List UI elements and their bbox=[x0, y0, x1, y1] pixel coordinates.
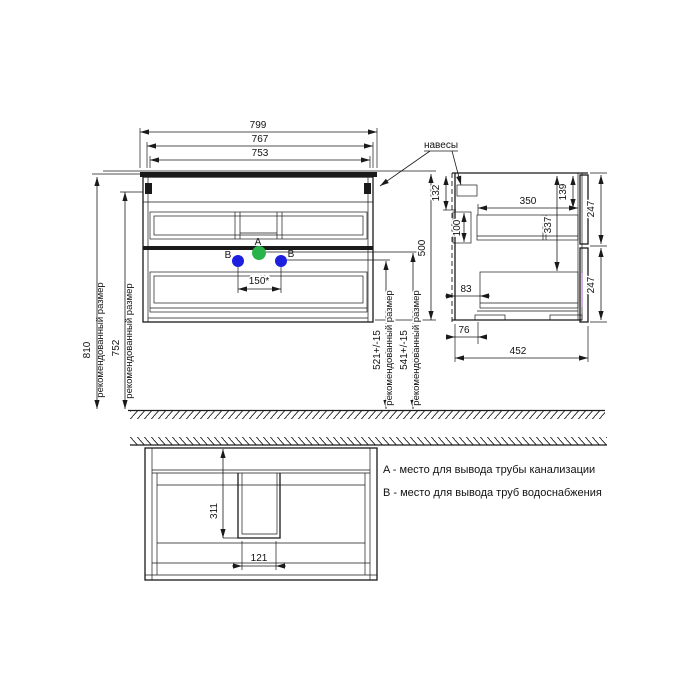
right-dimensions: 521+/-15 рекомендованный размер 541+/-15… bbox=[372, 174, 436, 409]
label-b-left: B bbox=[225, 250, 232, 261]
left-dimensions: 810 рекомендованный размер 752 рекомендо… bbox=[82, 174, 143, 409]
svg-text:810: 810 bbox=[82, 341, 93, 358]
dim-121: 121 bbox=[232, 541, 286, 570]
dim-247-upper: 247 bbox=[586, 173, 607, 246]
svg-text:799: 799 bbox=[250, 120, 267, 131]
svg-text:150*: 150* bbox=[249, 276, 270, 287]
countertop bbox=[140, 172, 377, 177]
dim-799: 799 bbox=[140, 120, 377, 132]
hangers-label: навесы bbox=[424, 140, 458, 151]
svg-text:752: 752 bbox=[111, 339, 122, 356]
side-lower-drawer bbox=[477, 272, 578, 311]
dim-810: 810 рекомендованный размер bbox=[82, 177, 106, 409]
svg-text:139: 139 bbox=[558, 183, 569, 200]
svg-text:рекомендованный размер: рекомендованный размер bbox=[95, 282, 106, 397]
dim-139: 139 bbox=[558, 176, 573, 208]
foot-right bbox=[550, 315, 582, 320]
svg-text:452: 452 bbox=[510, 346, 527, 357]
svg-text:76: 76 bbox=[458, 325, 470, 336]
svg-text:311: 311 bbox=[209, 503, 220, 519]
legend-line-b: B - место для вывода труб водоснабжения bbox=[383, 487, 602, 499]
technical-drawing: A B B 150* 799 767 753 навесы bbox=[0, 0, 700, 700]
svg-text:рекомендованный размер: рекомендованный размер bbox=[384, 290, 395, 405]
svg-text:247: 247 bbox=[586, 276, 597, 293]
label-a: A bbox=[255, 237, 262, 248]
legend: A - место для вывода трубы канализации B… bbox=[383, 464, 602, 499]
label-b-right: B bbox=[288, 249, 295, 260]
drain-outlet-marker bbox=[252, 246, 266, 260]
svg-text:521+/-15: 521+/-15 bbox=[372, 330, 383, 370]
svg-text:247: 247 bbox=[586, 200, 597, 217]
top-dimensions: 799 767 753 bbox=[140, 120, 377, 168]
dim-247-lower: 247 bbox=[586, 248, 607, 322]
svg-text:337: 337 bbox=[543, 216, 554, 233]
svg-text:350: 350 bbox=[520, 196, 537, 207]
svg-text:100: 100 bbox=[452, 219, 463, 236]
svg-text:753: 753 bbox=[252, 148, 269, 159]
legend-line-a: A - место для вывода трубы канализации bbox=[383, 464, 595, 476]
hangers-callout: навесы bbox=[380, 140, 461, 186]
bottom-view: 311 121 bbox=[130, 437, 607, 580]
svg-text:121: 121 bbox=[251, 553, 268, 564]
dim-337: 337 bbox=[543, 176, 557, 271]
upper-drawer bbox=[150, 212, 367, 239]
side-upper-drawer bbox=[477, 215, 578, 240]
svg-text:500: 500 bbox=[417, 239, 428, 256]
dim-452: 452 bbox=[455, 324, 588, 362]
siphon-cutout bbox=[238, 473, 280, 538]
dim-76: 76 bbox=[446, 322, 487, 344]
svg-text:132: 132 bbox=[431, 184, 442, 201]
dim-752: 752 рекомендованный размер bbox=[111, 192, 135, 409]
svg-text:рекомендованный размер: рекомендованный размер bbox=[411, 290, 422, 405]
svg-text:рекомендованный размер: рекомендованный размер bbox=[124, 283, 135, 398]
floor-hatch bbox=[130, 411, 605, 419]
dim-541: 541+/-15 рекомендованный размер bbox=[399, 253, 422, 409]
side-view: 132 100 350 139 337 247 247 bbox=[431, 173, 607, 362]
dim-521: 521+/-15 рекомендованный размер bbox=[372, 261, 395, 409]
wall-hatch bbox=[130, 437, 607, 445]
water-outlet-left-marker bbox=[232, 255, 244, 267]
dim-753: 753 bbox=[150, 148, 370, 160]
floor-line bbox=[128, 411, 605, 420]
dim-150: 150* bbox=[238, 267, 281, 293]
foot-left bbox=[475, 315, 505, 320]
dim-100: 100 bbox=[452, 213, 464, 242]
svg-text:767: 767 bbox=[252, 134, 269, 145]
hanger-right-icon bbox=[364, 183, 371, 194]
dim-767: 767 bbox=[147, 134, 373, 146]
water-outlet-right-marker bbox=[275, 255, 287, 267]
hanger-side-icon bbox=[457, 185, 477, 196]
svg-text:541+/-15: 541+/-15 bbox=[399, 330, 410, 370]
dim-311: 311 bbox=[209, 449, 240, 538]
svg-text:83: 83 bbox=[460, 284, 472, 295]
hanger-left-icon bbox=[145, 183, 152, 194]
